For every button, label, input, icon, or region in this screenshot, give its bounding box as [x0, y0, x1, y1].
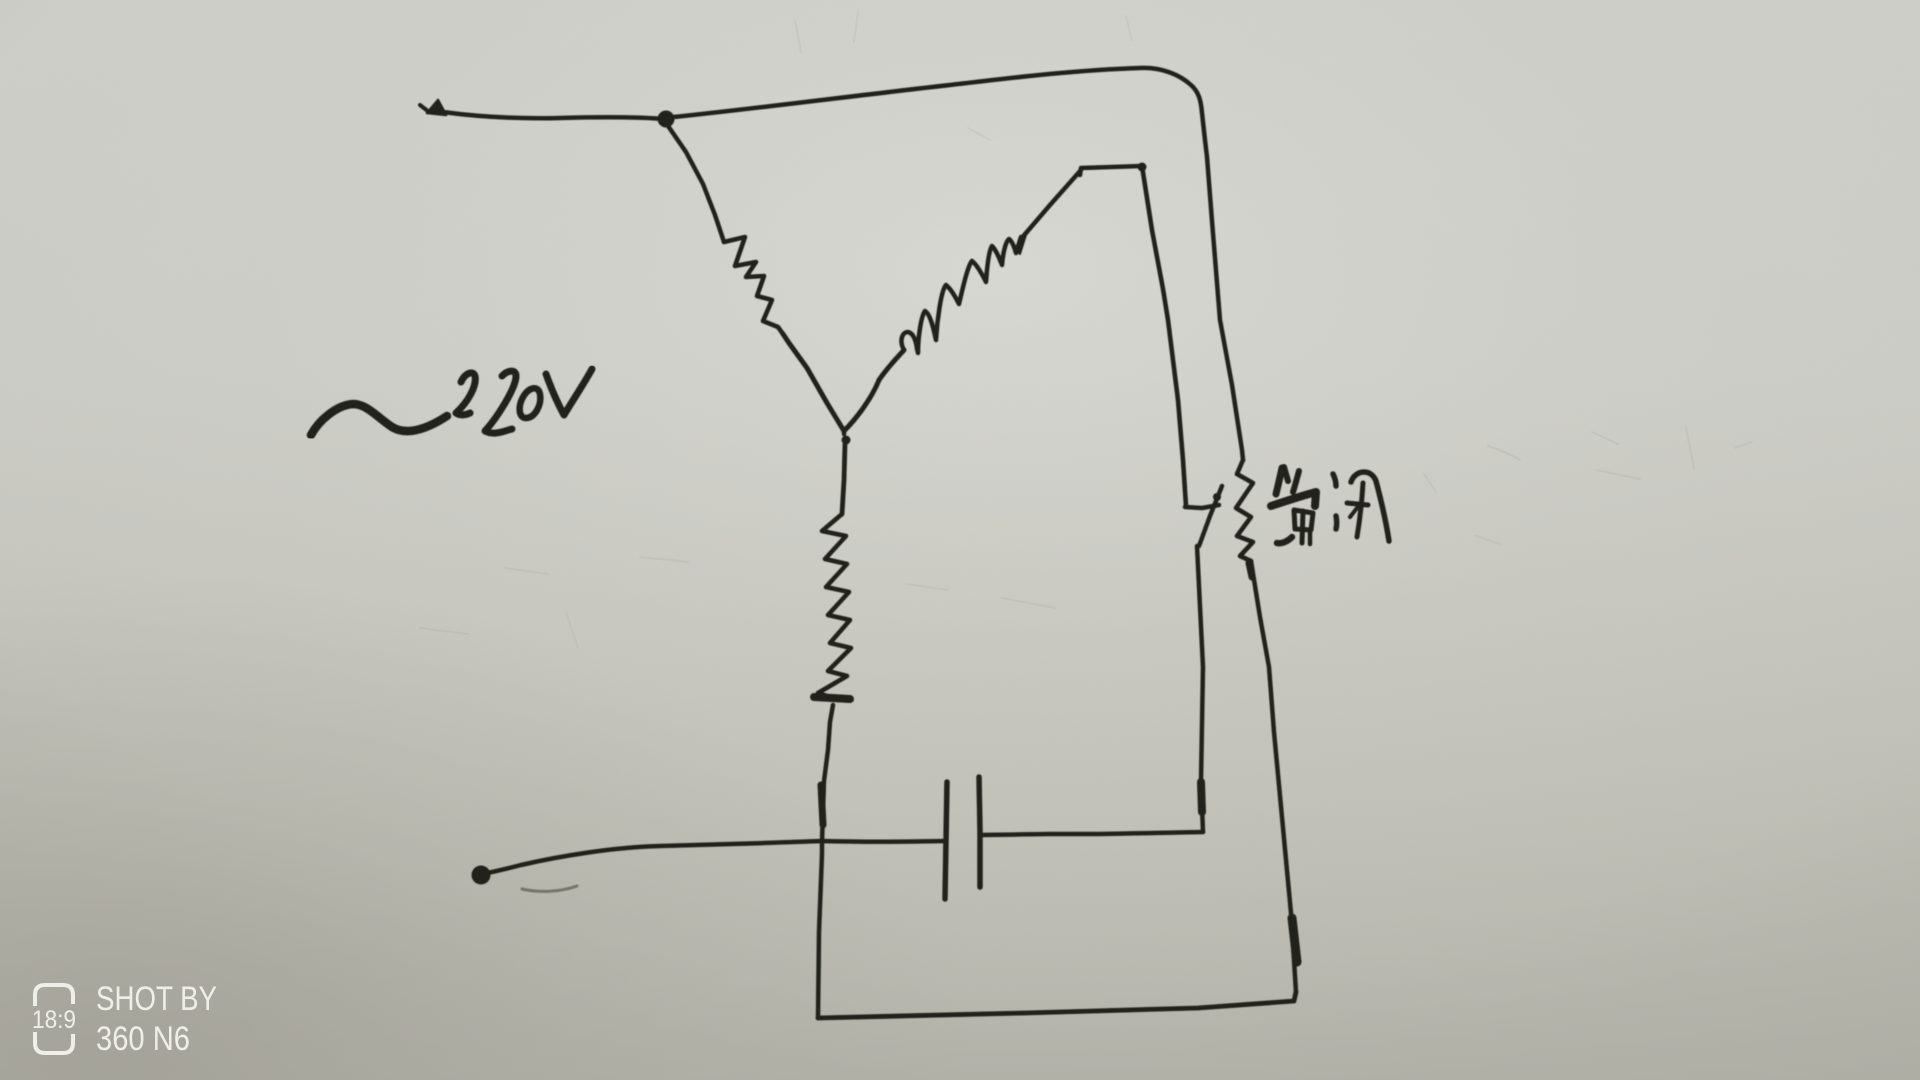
svg-text:360 N6: 360 N6: [96, 1020, 190, 1058]
svg-text:18:9: 18:9: [32, 1006, 76, 1034]
svg-text:SHOT BY: SHOT BY: [96, 980, 217, 1018]
